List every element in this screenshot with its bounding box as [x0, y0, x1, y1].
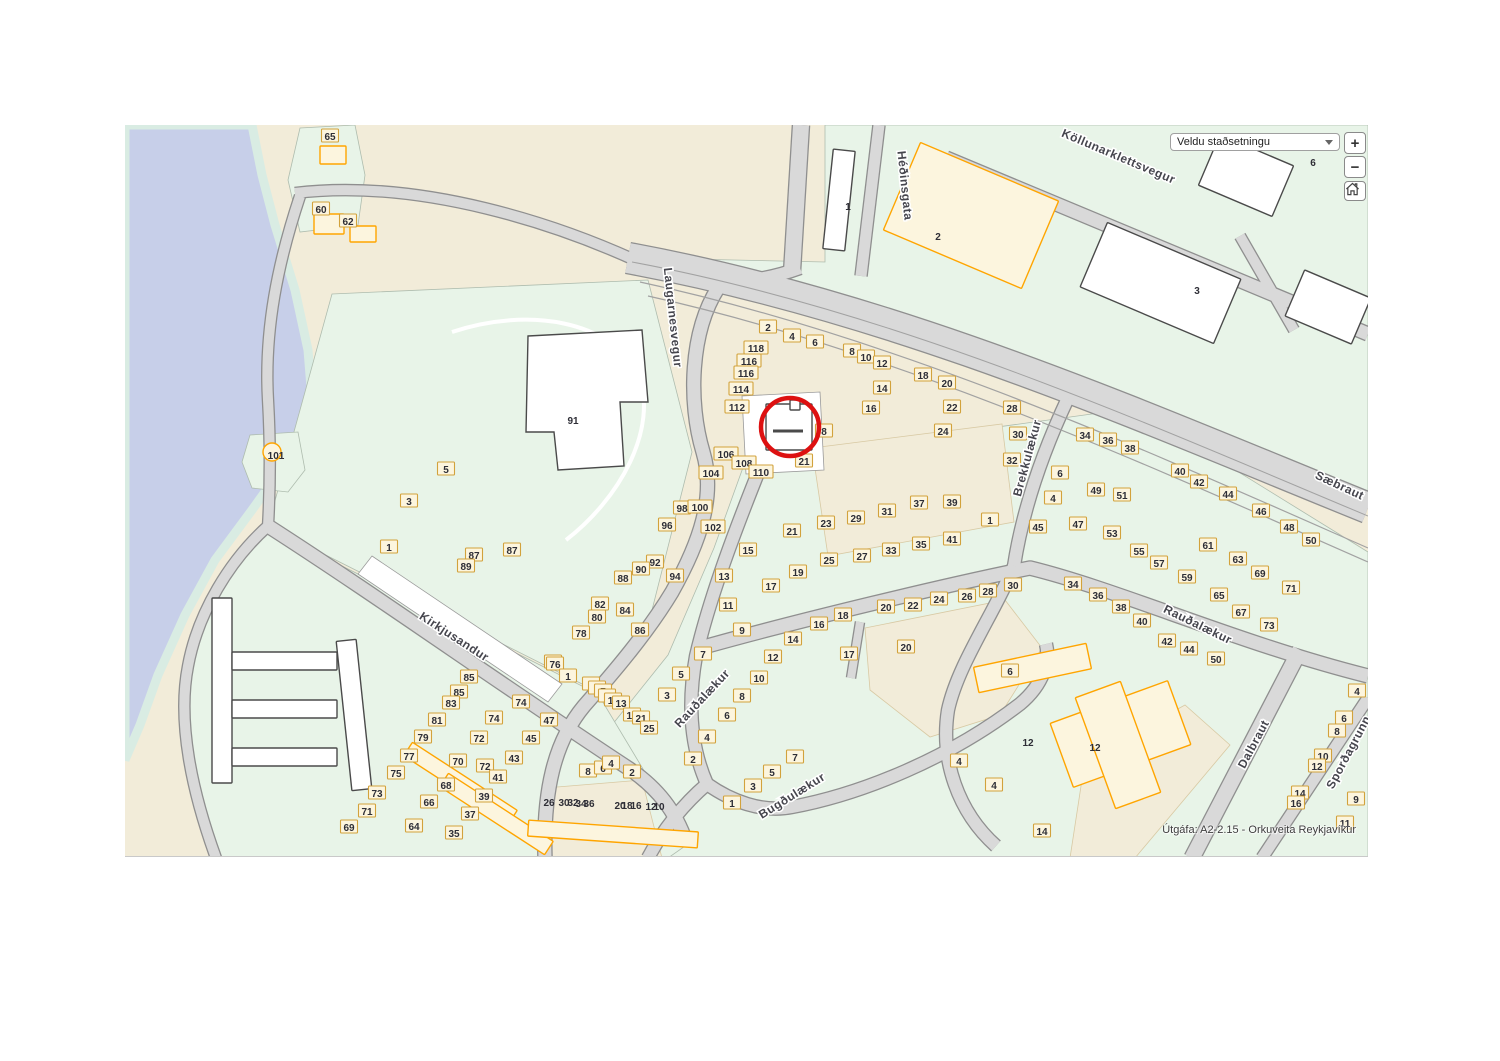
- chevron-down-icon: [1325, 140, 1333, 145]
- house-icon: [1345, 182, 1360, 196]
- house-number: 98: [676, 504, 688, 515]
- location-dropdown-value: Veldu staðsetningu: [1177, 136, 1270, 148]
- house-number: 69: [1254, 569, 1266, 580]
- house-number: 39: [478, 792, 490, 803]
- house-number: 16: [630, 801, 642, 812]
- house-number: 28: [982, 587, 994, 598]
- house-number: 21: [786, 527, 798, 538]
- house-number: 73: [1263, 621, 1275, 632]
- house-number: 17: [843, 650, 855, 661]
- building: [320, 146, 346, 164]
- house-number: 8: [739, 692, 745, 703]
- house-number: 11: [723, 601, 734, 612]
- house-number: 29: [850, 514, 862, 525]
- location-dropdown[interactable]: Veldu staðsetningu: [1170, 133, 1340, 151]
- house-number: 25: [643, 724, 655, 735]
- house-number: 18: [837, 611, 849, 622]
- house-number: 14: [876, 384, 888, 395]
- house-number: 3: [1194, 286, 1200, 297]
- house-number: 22: [907, 601, 919, 612]
- house-number: 33: [885, 546, 897, 557]
- house-number: 32: [1006, 456, 1018, 467]
- building: [232, 652, 337, 670]
- house-number: 3: [406, 497, 412, 508]
- house-number: 30: [1007, 581, 1019, 592]
- zoom-out-button[interactable]: −: [1344, 156, 1366, 178]
- house-number: 4: [608, 759, 614, 770]
- house-number: 38: [1124, 444, 1136, 455]
- house-number: 45: [525, 734, 537, 745]
- building: [350, 226, 376, 242]
- house-number: 27: [856, 552, 868, 563]
- building: [212, 598, 232, 783]
- house-number: 24: [937, 427, 949, 438]
- house-number: 20: [941, 379, 953, 390]
- house-number: 62: [342, 217, 354, 228]
- house-number: 77: [403, 752, 415, 763]
- house-number: 6: [1007, 667, 1013, 678]
- house-number: 5: [443, 465, 449, 476]
- house-number: 90: [635, 565, 647, 576]
- house-number: 48: [1283, 523, 1295, 534]
- house-number: 37: [464, 810, 476, 821]
- house-number: 25: [823, 556, 835, 567]
- house-number: 60: [315, 205, 327, 216]
- house-number: 12: [1022, 738, 1034, 749]
- house-number: 68: [440, 781, 452, 792]
- house-number: 6: [1310, 158, 1316, 169]
- house-number: 1: [845, 202, 851, 213]
- house-number: 78: [575, 629, 587, 640]
- house-number: 35: [448, 829, 460, 840]
- house-number: 47: [1072, 520, 1084, 531]
- house-number: 12: [876, 359, 888, 370]
- house-number: 8: [1334, 727, 1340, 738]
- house-number: 4: [704, 733, 710, 744]
- house-number: 71: [1285, 584, 1297, 595]
- house-number: 40: [1136, 617, 1148, 628]
- house-number: 87: [506, 546, 518, 557]
- house-number: 74: [488, 714, 500, 725]
- house-number: 66: [423, 798, 435, 809]
- house-number: 3: [664, 691, 670, 702]
- house-number: 101: [268, 451, 285, 462]
- house-number: 10: [860, 353, 872, 364]
- building: [232, 748, 337, 766]
- house-number: 49: [1090, 486, 1102, 497]
- house-number: 2: [935, 232, 941, 243]
- house-number: 40: [1174, 467, 1186, 478]
- house-number: 6: [1341, 714, 1347, 725]
- house-number: 80: [591, 613, 603, 624]
- house-number: 14: [787, 635, 799, 646]
- house-number: 86: [634, 626, 646, 637]
- house-number: 85: [463, 673, 475, 684]
- house-number: 69: [343, 823, 355, 834]
- house-number: 63: [1232, 555, 1244, 566]
- house-number: 37: [913, 499, 925, 510]
- house-number: 70: [452, 757, 464, 768]
- house-number: 83: [445, 699, 457, 710]
- house-number: 6: [1057, 469, 1063, 480]
- house-number: 9: [1353, 795, 1359, 806]
- house-number: 114: [733, 385, 750, 396]
- house-number: 65: [1213, 591, 1225, 602]
- house-number: 7: [700, 650, 706, 661]
- house-number: 104: [703, 469, 720, 480]
- zoom-in-button[interactable]: +: [1344, 132, 1366, 154]
- house-number: 84: [619, 606, 631, 617]
- house-number: 57: [1153, 559, 1165, 570]
- house-number: 92: [649, 558, 661, 569]
- house-number: 20: [880, 603, 892, 614]
- house-number: 67: [1235, 608, 1247, 619]
- house-number: 8: [849, 347, 855, 358]
- house-number: 82: [594, 600, 606, 611]
- building: [766, 404, 812, 450]
- house-number: 24: [933, 595, 945, 606]
- house-number: 102: [705, 523, 722, 534]
- house-number: 44: [1222, 490, 1234, 501]
- house-number: 34: [1079, 431, 1091, 442]
- house-number: 35: [915, 540, 927, 551]
- house-number: 22: [946, 403, 958, 414]
- page: 2461181161161141128101214161820222482110…: [0, 0, 1500, 1061]
- house-number: 1: [987, 516, 993, 527]
- house-number: 61: [1202, 541, 1214, 552]
- house-number: 51: [1116, 491, 1128, 502]
- house-number: 18: [917, 371, 929, 382]
- house-number: 4: [991, 781, 997, 792]
- house-number: 26: [961, 592, 973, 603]
- house-number: 30: [1012, 430, 1024, 441]
- house-number: 36: [1092, 591, 1104, 602]
- house-number: 53: [1106, 529, 1118, 540]
- house-number: 47: [543, 716, 555, 727]
- house-number: 72: [473, 734, 485, 745]
- house-number: 9: [739, 626, 745, 637]
- house-number: 17: [765, 582, 777, 593]
- house-number: 12: [1089, 743, 1101, 754]
- house-number: 8: [585, 767, 591, 778]
- house-number: 118: [748, 344, 765, 355]
- house-number: 116: [738, 369, 755, 380]
- map-attribution: Útgáfa: A2-2.15 - Orkuveita Reykjavíkur: [1162, 824, 1356, 836]
- house-number: 94: [669, 572, 681, 583]
- house-number: 4: [1354, 687, 1360, 698]
- house-number: 96: [661, 521, 673, 532]
- house-number: 6: [812, 338, 818, 349]
- house-number: 7: [792, 753, 798, 764]
- house-number: 79: [417, 733, 429, 744]
- house-number: 74: [515, 698, 527, 709]
- house-number: 50: [1305, 536, 1317, 547]
- house-number: 73: [371, 789, 383, 800]
- house-number: 42: [1161, 637, 1173, 648]
- house-number: 16: [813, 620, 825, 631]
- house-number: 89: [460, 562, 472, 573]
- house-number: 64: [408, 822, 420, 833]
- house-number: 2: [690, 755, 696, 766]
- house-number: 71: [361, 807, 373, 818]
- house-number: 16: [1290, 799, 1302, 810]
- house-number: 55: [1133, 547, 1145, 558]
- house-number: 14: [1036, 827, 1048, 838]
- house-number: 112: [729, 403, 746, 414]
- house-number: 46: [1255, 507, 1267, 518]
- house-number: 1: [565, 672, 571, 683]
- map-graphics: 2461181161161141128101214161820222482110…: [125, 125, 1368, 856]
- house-number: 8: [821, 427, 827, 438]
- house-number: 21: [798, 457, 810, 468]
- house-number: 23: [820, 519, 832, 530]
- house-number: 81: [431, 716, 443, 727]
- house-number: 75: [390, 769, 402, 780]
- house-number: 39: [946, 498, 958, 509]
- house-number: 38: [1115, 603, 1127, 614]
- house-number: 1: [386, 543, 392, 554]
- house-number: 28: [1006, 404, 1018, 415]
- house-number: 34: [1067, 580, 1079, 591]
- house-number: 16: [865, 404, 877, 415]
- house-number: 31: [881, 507, 893, 518]
- house-number: 2: [629, 768, 635, 779]
- house-number: 20: [900, 643, 912, 654]
- house-number: 41: [492, 773, 504, 784]
- house-number: 88: [617, 574, 629, 585]
- house-number: 15: [742, 546, 754, 557]
- house-number: 5: [769, 768, 775, 779]
- home-button[interactable]: [1344, 181, 1366, 201]
- house-number: 45: [1032, 523, 1044, 534]
- house-number: 110: [753, 468, 770, 479]
- house-number: 36: [1102, 436, 1114, 447]
- house-number: 5: [678, 670, 684, 681]
- house-number: 42: [1193, 478, 1205, 489]
- house-number: 91: [567, 416, 579, 427]
- house-number: 19: [792, 568, 804, 579]
- house-number: 100: [692, 503, 709, 514]
- building: [232, 700, 337, 718]
- house-number: 59: [1181, 573, 1193, 584]
- house-number: 43: [508, 754, 520, 765]
- house-number: 3: [750, 782, 756, 793]
- house-number: 44: [1183, 645, 1195, 656]
- house-number: 13: [718, 572, 730, 583]
- house-number: 10: [653, 802, 665, 813]
- house-number: 4: [789, 332, 795, 343]
- house-number: 1: [729, 799, 735, 810]
- house-number: 65: [324, 132, 336, 143]
- house-number: 12: [1311, 762, 1323, 773]
- house-number: 4: [956, 757, 962, 768]
- house-number: 50: [1210, 655, 1222, 666]
- house-number: 6: [724, 711, 730, 722]
- house-number: 41: [946, 535, 958, 546]
- house-number: 26: [543, 798, 555, 809]
- house-number: 4: [1050, 494, 1056, 505]
- house-number: 12: [767, 653, 779, 664]
- house-number: 10: [753, 674, 765, 685]
- house-number: 2: [765, 323, 771, 334]
- map-canvas[interactable]: 2461181161161141128101214161820222482110…: [125, 125, 1368, 857]
- house-number: 36: [583, 799, 595, 810]
